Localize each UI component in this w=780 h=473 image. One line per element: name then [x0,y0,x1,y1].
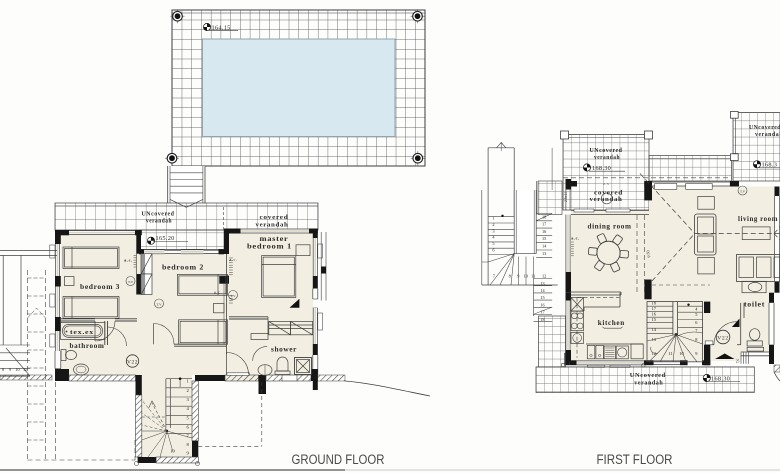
svg-text:verandah: verandah [634,380,663,387]
svg-text:UNcovered: UNcovered [590,147,623,154]
svg-text:11: 11 [668,351,672,356]
svg-text:shower: shower [271,346,297,354]
svg-text:GROUND FLOOR: GROUND FLOOR [292,452,385,467]
svg-text:15: 15 [540,295,544,300]
svg-text:verandah: verandah [594,154,620,161]
svg-text:9: 9 [517,273,519,278]
svg-text:T.V: T.V [230,294,236,298]
svg-text:bathroom: bathroom [70,342,105,350]
svg-text:25: 25 [736,360,740,364]
svg-text:T.V: T.V [156,302,162,306]
svg-text:UNcovered: UNcovered [630,372,666,379]
svg-text:10: 10 [524,273,528,278]
svg-text:bedroom 3: bedroom 3 [80,282,120,291]
svg-text:8: 8 [2,367,4,372]
svg-text:8: 8 [509,273,511,278]
svg-text:covered: covered [260,214,289,221]
svg-text:tex.ex: tex.ex [70,329,94,336]
svg-text:dining room: dining room [588,223,632,231]
svg-text:a.c.: a.c. [229,257,237,262]
svg-text:living room: living room [738,215,778,223]
svg-text:T.V: T.V [740,189,746,193]
svg-text:UNcovered: UNcovered [749,124,780,131]
svg-text:verandah: verandah [755,131,780,138]
svg-text:18: 18 [540,317,544,322]
svg-text:bedroom 2: bedroom 2 [162,263,204,272]
svg-text:bedroom 1: bedroom 1 [247,242,292,251]
svg-text:18: 18 [542,214,546,219]
svg-text:13: 13 [540,281,544,286]
svg-text:V22: V22 [127,360,138,366]
svg-text:a.c.: a.c. [124,258,133,263]
svg-text:V22: V22 [717,336,728,342]
svg-text:1: 1 [492,216,494,221]
svg-text:11: 11 [23,367,27,372]
svg-text:φ.60: φ.60 [646,250,651,257]
svg-text:5: 5 [492,241,494,246]
svg-text:verandah: verandah [590,196,623,203]
svg-text:verandah: verandah [256,221,289,228]
svg-text:9: 9 [9,367,11,372]
svg-text:12: 12 [542,273,546,278]
svg-text:15: 15 [542,236,546,241]
svg-text:13: 13 [542,251,546,256]
svg-text:T.V: T.V [128,280,134,284]
svg-text:3: 3 [492,228,494,233]
svg-text:FIRST FLOOR: FIRST FLOOR [597,452,673,467]
svg-text:2.5: 2.5 [603,182,609,186]
svg-text:toilet: toilet [744,301,765,309]
svg-text:2: 2 [492,222,494,227]
svg-text:a.c.: a.c. [571,236,579,241]
svg-text:10: 10 [15,367,19,372]
svg-text:verandah: verandah [146,217,172,224]
svg-text:11: 11 [531,273,535,278]
svg-text:16: 16 [540,302,544,307]
svg-text:kitchen: kitchen [598,319,625,327]
